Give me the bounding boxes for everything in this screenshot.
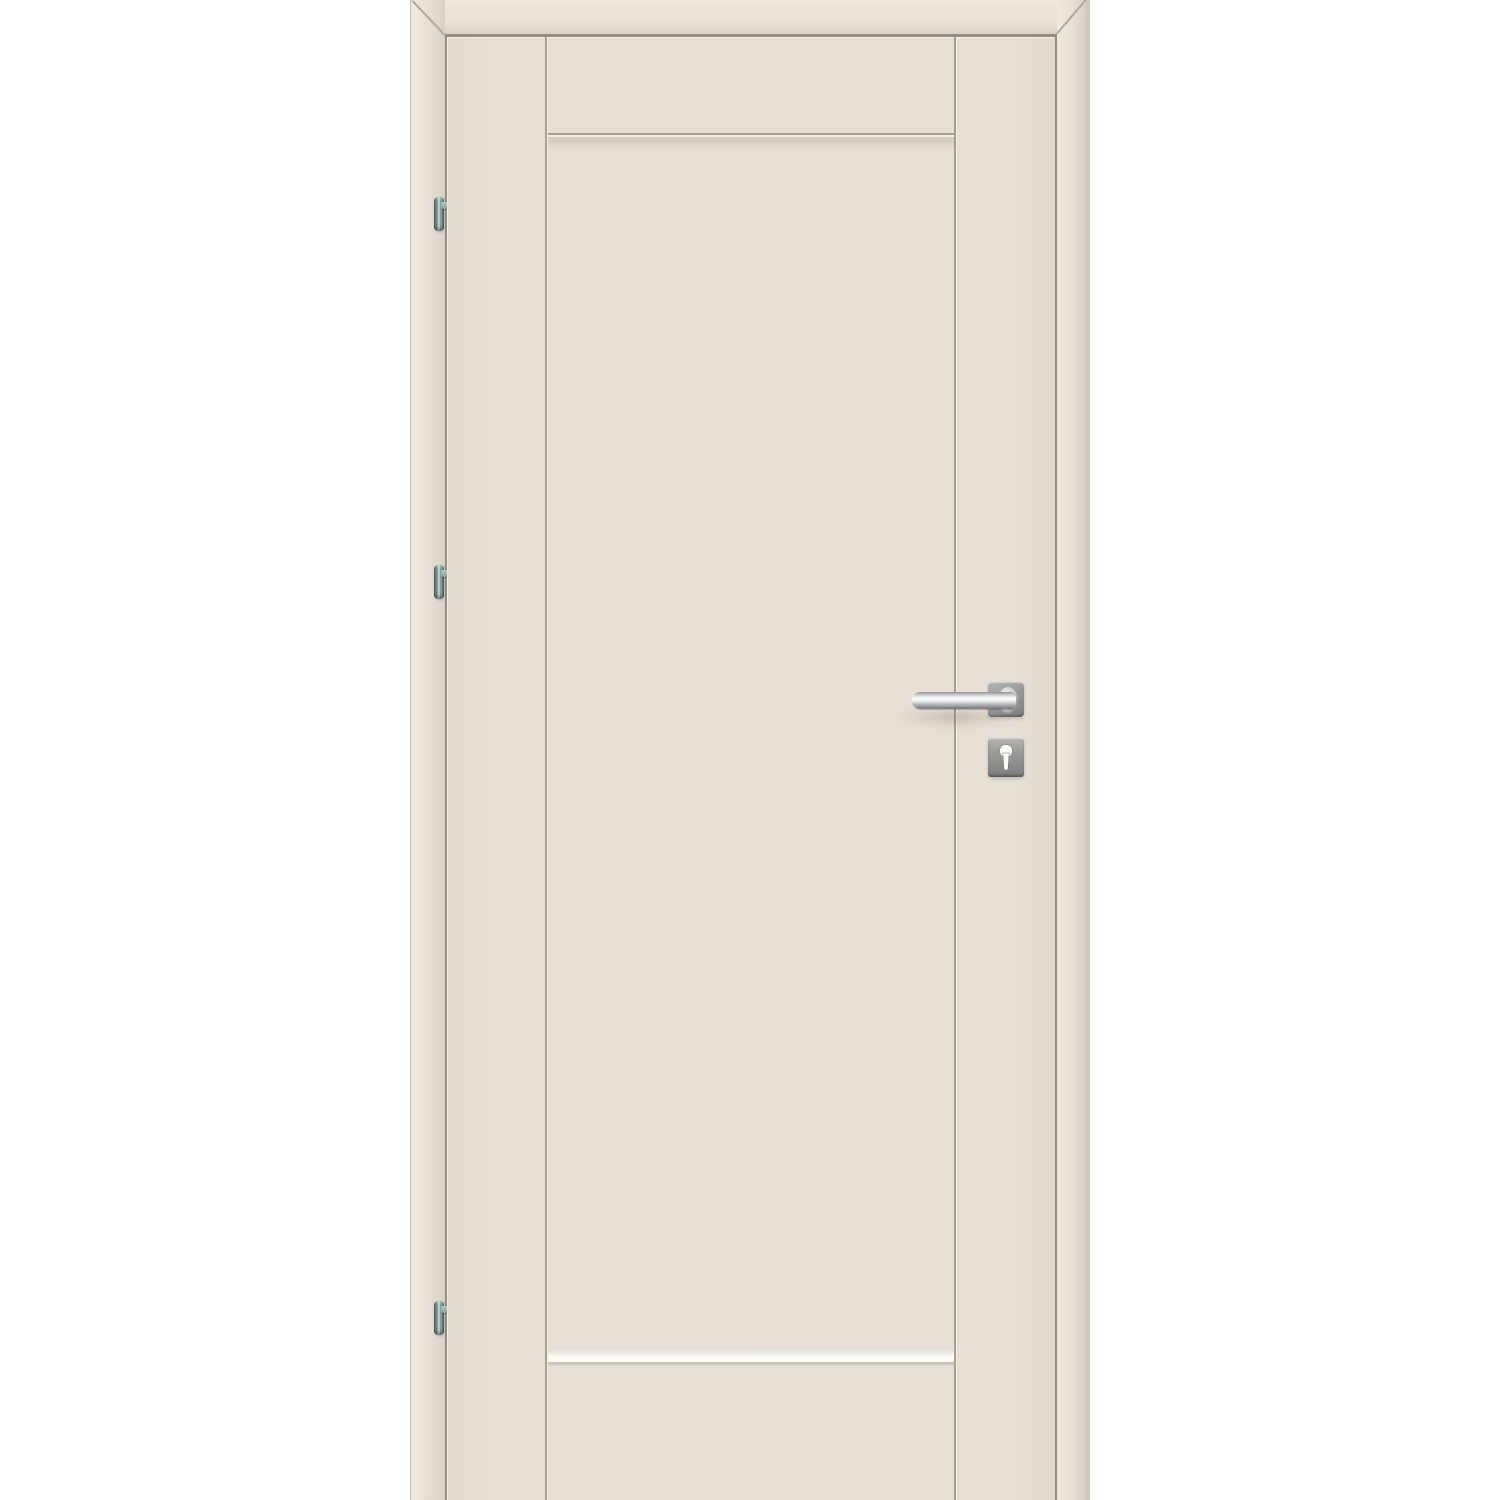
frame-outer-edge-left: [410, 0, 412, 1500]
hinge-middle: [434, 565, 444, 599]
lever-handle: [912, 692, 1016, 709]
frame-outer-edge-right: [1084, 0, 1090, 1500]
door-frame-head: [410, 0, 1090, 34]
hinge-bottom: [434, 1301, 444, 1335]
hinge-pin: [441, 1306, 447, 1313]
hinge-pin: [441, 570, 447, 577]
panel-groove-left: [545, 37, 548, 1500]
panel-groove-bottom: [548, 1350, 954, 1369]
panel-groove-top: [548, 133, 954, 150]
hinge-pin: [441, 202, 447, 209]
keyhole-icon: [988, 738, 1024, 777]
keyhole-escutcheon: [988, 738, 1024, 777]
hinge-top: [434, 197, 444, 231]
door-unit: [410, 0, 1090, 1500]
door-leaf: [445, 34, 1057, 1500]
door-product-photo: [0, 0, 1500, 1500]
panel-groove-right: [954, 37, 957, 1500]
